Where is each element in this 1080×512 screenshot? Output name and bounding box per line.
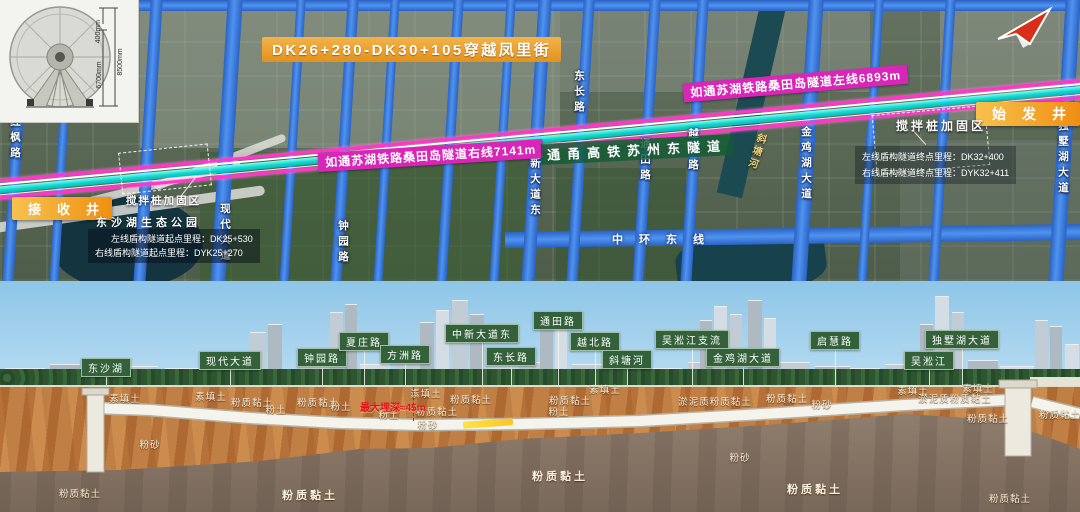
end-mileage-box: 左线盾构隧道终点里程：DK32+400 右线盾构隧道终点里程：DYK32+411 bbox=[855, 146, 1016, 184]
reinforcement-label-right: 搅拌桩加固区 bbox=[896, 117, 986, 134]
landmark-sign: 现代大道 bbox=[199, 351, 261, 370]
soil-label: 粉砂 bbox=[139, 437, 160, 451]
landmark-sign: 方洲路 bbox=[380, 345, 430, 364]
dim-6700mm: 6700mm bbox=[96, 61, 103, 88]
tbm-diagram: 400mm 6700mm 8500mm bbox=[0, 0, 138, 122]
leader-line bbox=[962, 344, 963, 385]
landmark-sign: 中新大道东 bbox=[445, 324, 519, 343]
soil-label: 粉砂 bbox=[417, 417, 438, 431]
soil-label: 素填土 bbox=[195, 389, 227, 403]
landmark-sign: 独墅湖大道 bbox=[925, 330, 999, 349]
landmark-sign: 越北路 bbox=[570, 332, 620, 351]
landmark-sign: 东长路 bbox=[486, 347, 536, 366]
max-depth-label: 最大埋深≈45m bbox=[360, 399, 426, 414]
soil-label: 粉土 bbox=[330, 399, 351, 413]
leader-line bbox=[692, 344, 693, 385]
park-label: 东沙湖生态公园 bbox=[96, 214, 201, 230]
soil-label: 素填土 bbox=[410, 386, 442, 400]
soil-label: 粉质黏土 bbox=[787, 481, 843, 497]
soil-label: 粉质黏土 bbox=[59, 486, 101, 500]
leader-line bbox=[595, 346, 596, 385]
leader-line bbox=[482, 338, 483, 385]
leader-line bbox=[558, 325, 559, 385]
soil-label: 粉土 bbox=[265, 402, 286, 416]
launch-shaft-label: 始发井 bbox=[976, 102, 1080, 126]
landmark-sign: 通田路 bbox=[533, 311, 583, 330]
soil-label: 淤泥质粉质黏土 bbox=[918, 391, 992, 405]
road-label: 独墅湖大道 bbox=[1056, 120, 1071, 198]
figure: 中环东线 斜塘河 DK26+280-DK30+105穿越凤里街 如通苏湖铁路桑田… bbox=[0, 0, 1080, 512]
landmark-sign: 启慧路 bbox=[810, 331, 860, 350]
soil-label: 素填土 bbox=[589, 382, 621, 396]
landmark-sign: 金鸡湖大道 bbox=[706, 348, 780, 367]
end-mileage-right: 右线盾构隧道终点里程：DYK32+411 bbox=[862, 165, 1009, 181]
start-mileage-box: 左线盾构隧道起点里程：DK25+530 右线盾构隧道起点里程：DYK25+270 bbox=[88, 229, 260, 263]
road-label: 钟园路 bbox=[336, 220, 351, 267]
end-mileage-left: 左线盾构隧道终点里程：DK32+400 bbox=[862, 149, 1009, 165]
landmark-sign: 吴淞江 bbox=[904, 351, 954, 370]
soil-label: 粉砂 bbox=[811, 397, 832, 411]
road-top bbox=[130, 0, 1080, 11]
start-mileage-right: 右线盾构隧道起点里程：DYK25+270 bbox=[95, 246, 253, 260]
road-label-ring-east: 中环东线 bbox=[612, 231, 720, 247]
soil-label: 粉质黏土 bbox=[1039, 407, 1080, 421]
dim-8500mm: 8500mm bbox=[117, 48, 124, 75]
receiving-shaft-structure bbox=[87, 392, 104, 472]
road-label: 金鸡湖大道 bbox=[799, 126, 814, 204]
soil-label: 粉土 bbox=[548, 404, 569, 418]
north-arrow-icon bbox=[993, 4, 1057, 52]
crossing-section-label: DK26+280-DK30+105穿越凤里街 bbox=[262, 37, 561, 62]
soil-label: 淤泥质粉质黏土 bbox=[678, 394, 752, 408]
landmark-sign: 斜塘河 bbox=[602, 350, 652, 369]
soil-label: 粉质黏土 bbox=[766, 391, 808, 405]
road-label: 东长路 bbox=[572, 70, 587, 117]
leader-line bbox=[364, 346, 365, 385]
landmark-sign: 吴淞江支流 bbox=[655, 330, 729, 349]
geological-profile: 最大埋深≈45m 东沙湖现代大道钟园路夏庄路方洲路中新大道东东长路通田路越北路斜… bbox=[0, 281, 1080, 512]
soil-label: 素填土 bbox=[109, 391, 141, 405]
landmark-sign: 东沙湖 bbox=[81, 358, 131, 377]
soil-label: 粉砂 bbox=[729, 450, 750, 464]
satellite-map: 中环东线 斜塘河 DK26+280-DK30+105穿越凤里街 如通苏湖铁路桑田… bbox=[0, 0, 1080, 281]
max-depth-dashed-line bbox=[413, 387, 414, 421]
leader-line bbox=[835, 345, 836, 385]
reinforcement-label-left: 搅拌桩加固区 bbox=[126, 193, 201, 208]
soil-label: 粉质黏土 bbox=[967, 411, 1009, 425]
reinforcement-zone-left bbox=[118, 143, 212, 194]
start-mileage-left: 左线盾构隧道起点里程：DK25+530 bbox=[95, 232, 253, 246]
soil-label: 粉质黏土 bbox=[989, 491, 1031, 505]
soil-label: 粉质黏土 bbox=[282, 487, 338, 503]
dim-400mm: 400mm bbox=[95, 20, 102, 44]
soil-label: 粉质黏土 bbox=[532, 468, 588, 484]
tbm-cross-section-inset: 400mm 6700mm 8500mm bbox=[0, 0, 139, 123]
